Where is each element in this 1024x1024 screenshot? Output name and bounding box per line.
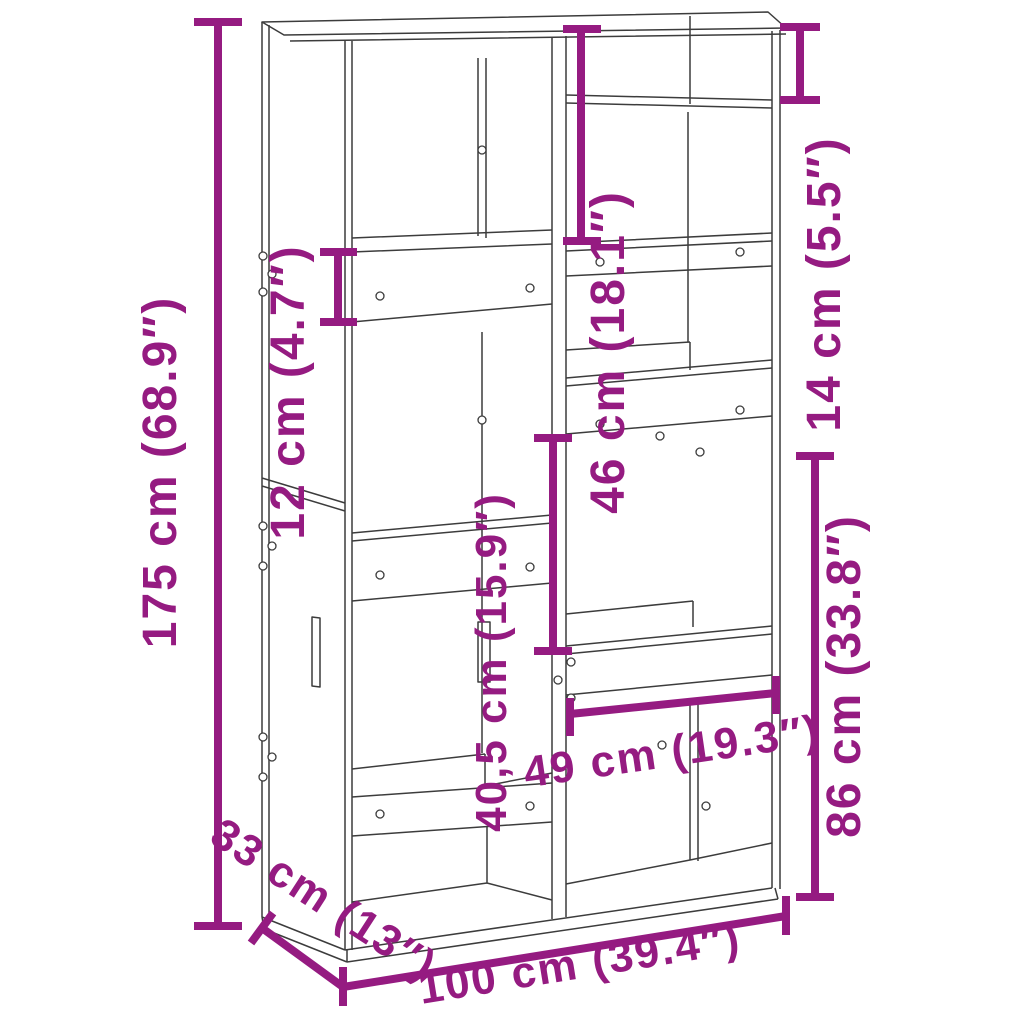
bookcase-dimension-drawing: 175 cm (68.9″) 12 cm (4.7″) 46 cm (18.1″… <box>0 0 1024 1024</box>
cabinet-linework <box>259 12 786 962</box>
dimension-label: 14 cm (5.5″) <box>798 136 851 431</box>
top-panel <box>262 12 786 41</box>
dimension-height-total: 175 cm (68.9″) <box>134 22 242 926</box>
support-strips <box>312 617 490 687</box>
dimension-shelf-band: 12 cm (4.7″) <box>262 244 357 539</box>
dimension-label: 86 cm (33.8″) <box>818 514 871 838</box>
dimension-label: 40,5 cm (15.9″) <box>467 492 516 832</box>
dimension-label: 33 cm (13″) <box>202 809 445 991</box>
dimension-top-right-slot: 14 cm (5.5″) <box>780 27 851 432</box>
shelf-band-left-top <box>352 230 552 322</box>
dimension-lower-right-section: 86 cm (33.8″) <box>796 456 871 897</box>
dimension-label: 175 cm (68.9″) <box>134 296 187 649</box>
dimension-depth: 33 cm (13″) <box>202 809 445 991</box>
dimension-line <box>262 928 343 987</box>
product-dimension-diagram: 175 cm (68.9″) 12 cm (4.7″) 46 cm (18.1″… <box>0 0 1024 1024</box>
dimension-annotations: 175 cm (68.9″) 12 cm (4.7″) 46 cm (18.1″… <box>134 22 871 1014</box>
dimension-label: 46 cm (18.1″) <box>582 190 635 514</box>
shelf-band-right-lower <box>566 601 772 695</box>
shelf-band-left-middle <box>352 515 552 601</box>
dimension-label: 12 cm (4.7″) <box>262 244 315 539</box>
dimension-top-section: 46 cm (18.1″) <box>563 29 635 514</box>
dimension-line <box>570 693 776 714</box>
